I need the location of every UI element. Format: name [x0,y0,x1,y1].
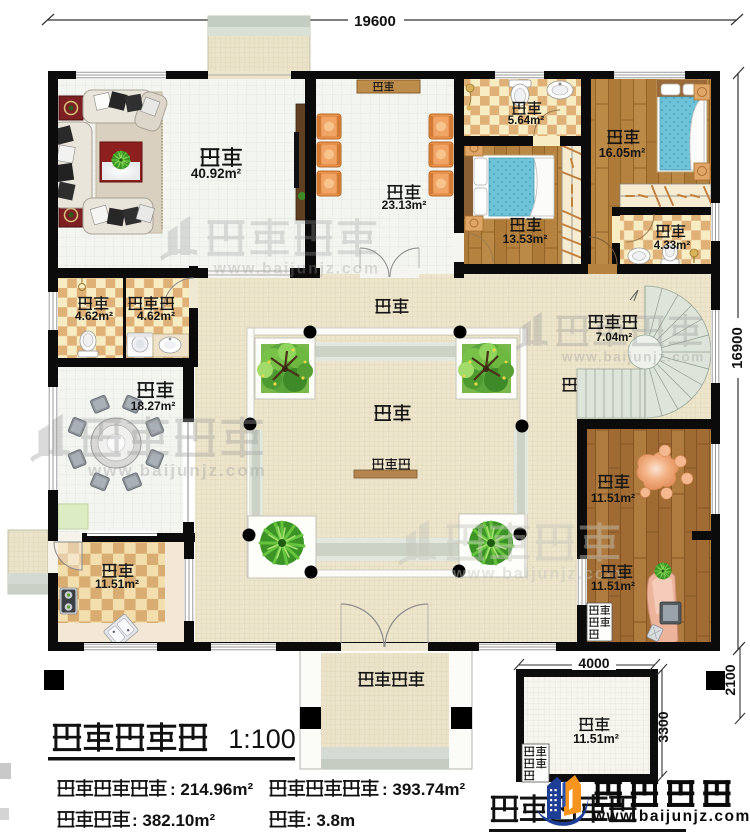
svg-text:13.53m²: 13.53m² [503,232,548,246]
svg-text:5.64m²: 5.64m² [508,115,545,127]
svg-text:11.51m²: 11.51m² [591,579,635,593]
svg-text:3300: 3300 [655,711,671,742]
svg-text:1:100: 1:100 [228,724,296,754]
svg-text:40.92m²: 40.92m² [191,166,242,181]
svg-text:www.baijunjz.com: www.baijunjz.com [592,808,750,825]
svg-text:19600: 19600 [354,13,396,30]
svg-text:11.51m²: 11.51m² [95,577,139,591]
svg-text:: 214.96m²: : 214.96m² [170,780,253,799]
svg-text:: 393.74m²: : 393.74m² [382,780,465,799]
svg-text:4.62m²: 4.62m² [75,309,113,323]
svg-text:18.27m²: 18.27m² [131,399,176,413]
svg-text:7.04m²: 7.04m² [596,332,633,344]
svg-text:www.baijunjz.com: www.baijunjz.com [213,261,380,278]
svg-text:16900: 16900 [729,327,746,369]
svg-text:23.13m²: 23.13m² [382,198,427,212]
svg-text:11.51m²: 11.51m² [573,732,619,746]
svg-text:16.05m²: 16.05m² [599,146,646,160]
svg-text:4.33m²: 4.33m² [654,240,691,252]
svg-text:www.baijunjz.com: www.baijunjz.com [87,461,267,480]
svg-text:4000: 4000 [578,655,609,671]
svg-text:: 382.10m²: : 382.10m² [132,811,215,830]
svg-text:www.baijunjz.com: www.baijunjz.com [561,350,705,365]
svg-text:11.51m²: 11.51m² [591,491,635,505]
svg-text:4.62m²: 4.62m² [137,309,175,323]
svg-text:: 3.8m: : 3.8m [306,811,355,830]
